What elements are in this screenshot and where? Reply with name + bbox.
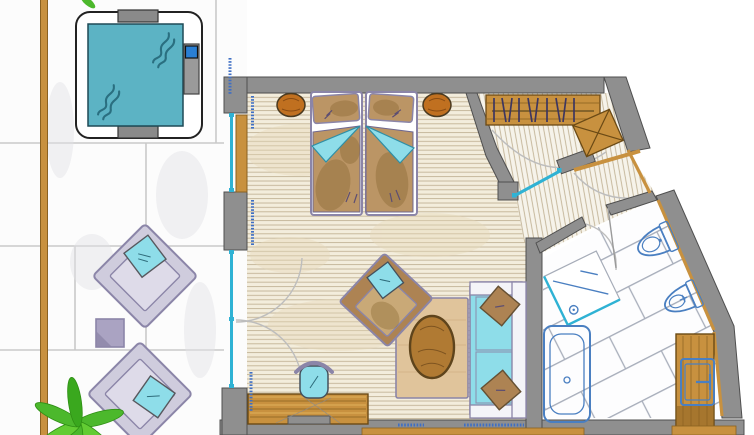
sofa-arm-bottom: [470, 405, 516, 418]
floor-plan-drawing: [0, 0, 754, 435]
coffee-table: [410, 316, 454, 378]
nightstand-left: [277, 94, 305, 117]
nightstand-right: [423, 94, 451, 117]
side-table: [96, 319, 124, 347]
sofa: [470, 282, 526, 418]
wall-bathroom-left: [526, 238, 542, 435]
bedroom-window: [229, 113, 247, 192]
terrace: [0, 0, 247, 435]
wall-left-pier: [224, 192, 247, 250]
pillow-left: [312, 93, 360, 123]
pillow-right: [368, 93, 414, 122]
exterior-board-bottom: [362, 428, 584, 435]
vanity: [676, 334, 714, 428]
hot-tub: [76, 10, 202, 138]
exterior-board-bottom-right: [672, 426, 736, 435]
wall-left-bottom: [222, 388, 247, 435]
hot-tub-step-bottom: [118, 126, 158, 138]
terrace-edge-board: [40, 0, 48, 435]
window-sill: [236, 115, 247, 192]
floor-plan-canvas: [0, 0, 754, 435]
wall-left-corner: [224, 77, 247, 113]
wall-top: [224, 77, 604, 93]
hot-tub-step-top: [118, 10, 158, 22]
tv: [288, 416, 330, 424]
hot-tub-control-panel: [186, 46, 198, 58]
